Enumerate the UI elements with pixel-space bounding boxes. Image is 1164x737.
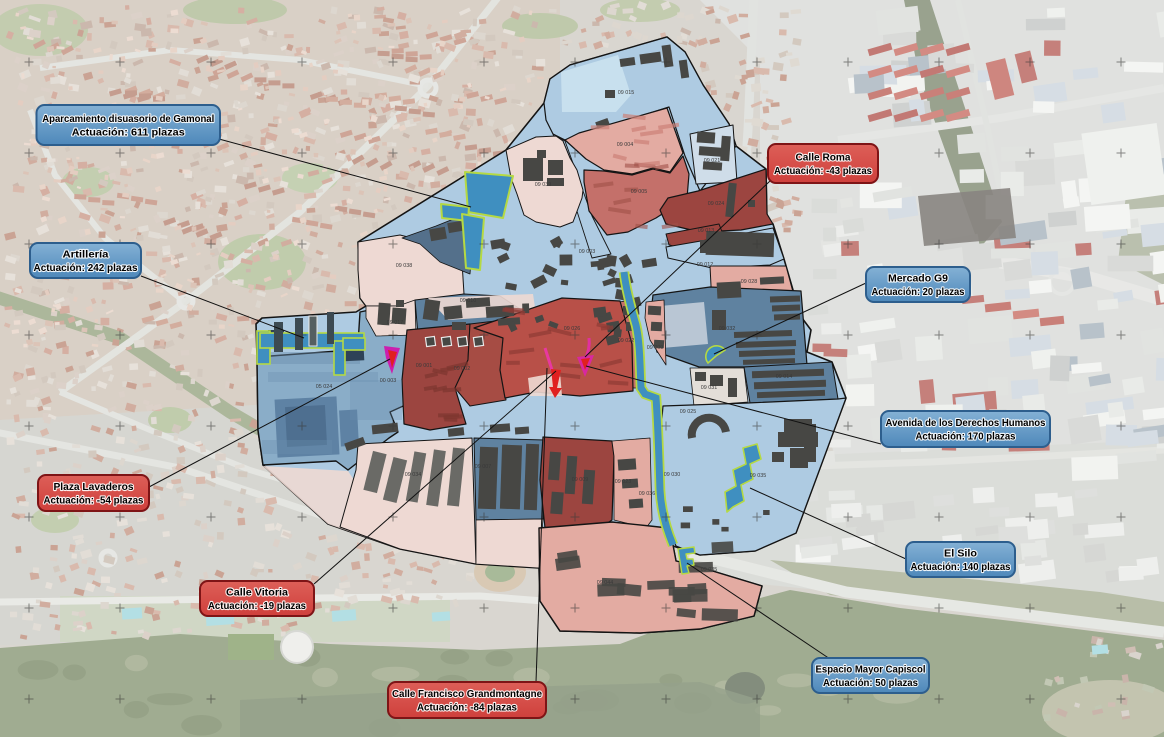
svg-text:09 003: 09 003 [579, 249, 596, 255]
svg-text:09 014: 09 014 [776, 374, 793, 380]
svg-text:09 021: 09 021 [704, 158, 721, 164]
svg-text:09 015: 09 015 [618, 90, 635, 96]
svg-text:09 013: 09 013 [698, 228, 715, 234]
svg-text:Mercado G9: Mercado G9 [888, 272, 948, 284]
svg-text:09 025: 09 025 [680, 409, 697, 415]
svg-text:09 028: 09 028 [741, 279, 758, 285]
svg-text:09 039: 09 039 [535, 182, 552, 188]
svg-text:09 030: 09 030 [664, 472, 681, 478]
svg-text:Calle Vitoria: Calle Vitoria [226, 586, 288, 598]
svg-text:09 012: 09 012 [697, 262, 714, 268]
svg-text:09 044: 09 044 [597, 580, 614, 586]
svg-text:Actuación: -84 plazas: Actuación: -84 plazas [417, 702, 517, 714]
svg-text:Calle Roma: Calle Roma [796, 151, 851, 163]
svg-text:09 023: 09 023 [615, 479, 632, 485]
svg-text:09 022: 09 022 [618, 338, 635, 344]
svg-text:09 024: 09 024 [708, 201, 725, 207]
svg-text:09 031: 09 031 [701, 385, 718, 391]
svg-text:09 026: 09 026 [564, 326, 581, 332]
svg-text:Espacio Mayor Capiscol: Espacio Mayor Capiscol [816, 663, 926, 675]
svg-text:Actuación: 170 plazas: Actuación: 170 plazas [916, 431, 1016, 443]
svg-text:Avenida de los Derechos Humano: Avenida de los Derechos Humanos [886, 417, 1046, 429]
svg-text:Calle Francisco Grandmontagne: Calle Francisco Grandmontagne [392, 688, 542, 700]
svg-text:Artillería: Artillería [63, 248, 109, 260]
svg-text:09 034: 09 034 [405, 472, 422, 478]
svg-text:Actuación: -54 plazas: Actuación: -54 plazas [44, 495, 144, 507]
svg-text:09 009: 09 009 [572, 477, 589, 483]
svg-text:09 005: 09 005 [631, 189, 648, 195]
svg-text:00 003: 00 003 [380, 378, 397, 384]
svg-text:09 002: 09 002 [454, 366, 471, 372]
svg-text:09 010: 09 010 [460, 298, 477, 304]
svg-text:El Silo: El Silo [944, 547, 977, 559]
svg-text:Plaza Lavaderos: Plaza Lavaderos [54, 481, 134, 493]
svg-text:09 035: 09 035 [701, 567, 718, 573]
svg-text:Actuación: -19 plazas: Actuación: -19 plazas [208, 600, 306, 612]
svg-text:Actuación: 20 plazas: Actuación: 20 plazas [872, 286, 965, 298]
svg-text:09 017: 09 017 [387, 320, 404, 326]
svg-text:09 032: 09 032 [719, 326, 736, 332]
svg-text:09 038: 09 038 [396, 263, 413, 269]
svg-text:Actuación: 242 plazas: Actuación: 242 plazas [34, 262, 138, 274]
svg-text:09 035: 09 035 [750, 473, 767, 479]
svg-text:Aparcamiento disuasorio de Gam: Aparcamiento disuasorio de Gamonal [42, 113, 214, 125]
svg-text:Actuación: 140 plazas: Actuación: 140 plazas [911, 561, 1011, 573]
svg-text:09 009: 09 009 [647, 345, 664, 351]
svg-text:09 036: 09 036 [639, 491, 656, 497]
svg-text:09 007: 09 007 [475, 464, 492, 470]
svg-text:Actuación: -43 plazas: Actuación: -43 plazas [774, 165, 872, 177]
svg-text:Actuación: 611 plazas: Actuación: 611 plazas [72, 127, 185, 139]
svg-text:Actuación: 50 plazas: Actuación: 50 plazas [823, 677, 918, 689]
svg-text:05 024: 05 024 [316, 384, 333, 390]
svg-text:09 001: 09 001 [416, 363, 433, 369]
svg-text:09 004: 09 004 [617, 142, 634, 148]
